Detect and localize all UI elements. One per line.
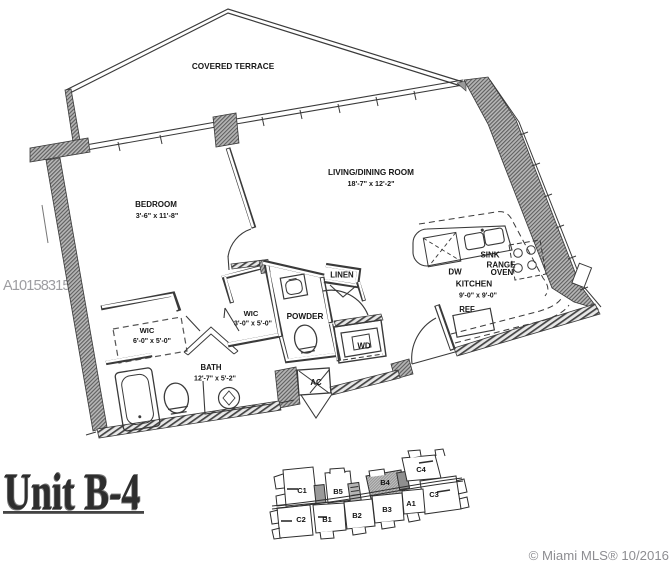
svg-text:POWDER: POWDER xyxy=(287,312,324,321)
svg-text:B4: B4 xyxy=(380,478,390,487)
svg-text:A1: A1 xyxy=(406,499,416,508)
svg-text:C3: C3 xyxy=(429,490,439,499)
svg-text:BATH: BATH xyxy=(200,363,221,372)
svg-text:LINEN: LINEN xyxy=(330,271,354,280)
svg-text:9'-0" x 9'-0": 9'-0" x 9'-0" xyxy=(459,293,497,300)
svg-text:3'-6" x 11'-8": 3'-6" x 11'-8" xyxy=(136,211,179,220)
svg-text:DW: DW xyxy=(448,268,462,277)
svg-text:B3: B3 xyxy=(382,505,392,514)
svg-text:B1: B1 xyxy=(322,515,332,524)
svg-text:12'-7" x 5'-2": 12'-7" x 5'-2" xyxy=(194,376,236,383)
svg-text:KITCHEN: KITCHEN xyxy=(456,280,492,289)
svg-text:B2: B2 xyxy=(352,511,362,520)
svg-text:SINK: SINK xyxy=(480,251,499,260)
svg-text:WIC: WIC xyxy=(140,326,155,335)
svg-text:A10158315: A10158315 xyxy=(3,278,70,294)
svg-text:AC: AC xyxy=(310,378,322,387)
svg-text:LIVING/DINING ROOM: LIVING/DINING ROOM xyxy=(328,168,414,177)
svg-text:C1: C1 xyxy=(297,486,307,495)
svg-text:BEDROOM: BEDROOM xyxy=(135,200,177,209)
svg-text:COVERED TERRACE: COVERED TERRACE xyxy=(192,62,275,71)
svg-text:C4: C4 xyxy=(416,465,426,474)
svg-text:REF: REF xyxy=(459,305,475,314)
svg-text:3'-0" x 5'-0": 3'-0" x 5'-0" xyxy=(234,321,272,328)
svg-text:C2: C2 xyxy=(296,515,306,524)
svg-text:© Miami MLS® 10/2016: © Miami MLS® 10/2016 xyxy=(529,548,669,563)
svg-text:6'-0" x 5'-0": 6'-0" x 5'-0" xyxy=(133,338,171,345)
svg-text:WD: WD xyxy=(357,342,371,351)
svg-text:B5: B5 xyxy=(333,487,343,496)
svg-text:OVEN: OVEN xyxy=(491,268,514,277)
svg-text:18'-7" x 12'-2": 18'-7" x 12'-2" xyxy=(348,179,395,188)
svg-text:WIC: WIC xyxy=(244,309,259,318)
